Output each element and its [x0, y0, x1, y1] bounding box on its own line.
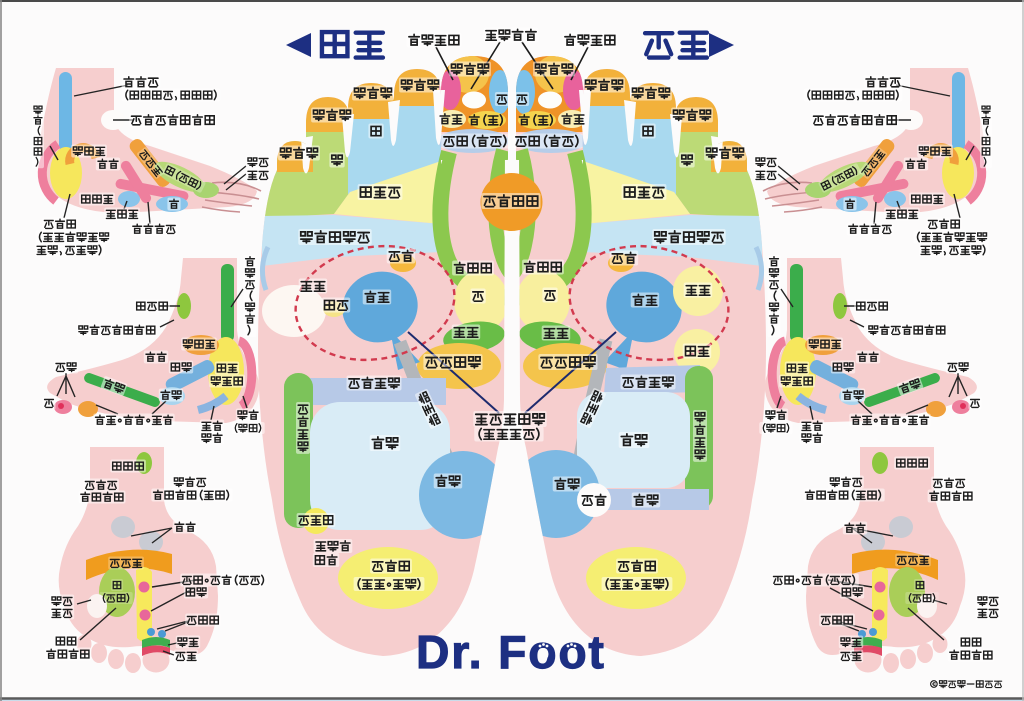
svg-text:Dr. Foot: Dr. Foot: [416, 626, 606, 678]
